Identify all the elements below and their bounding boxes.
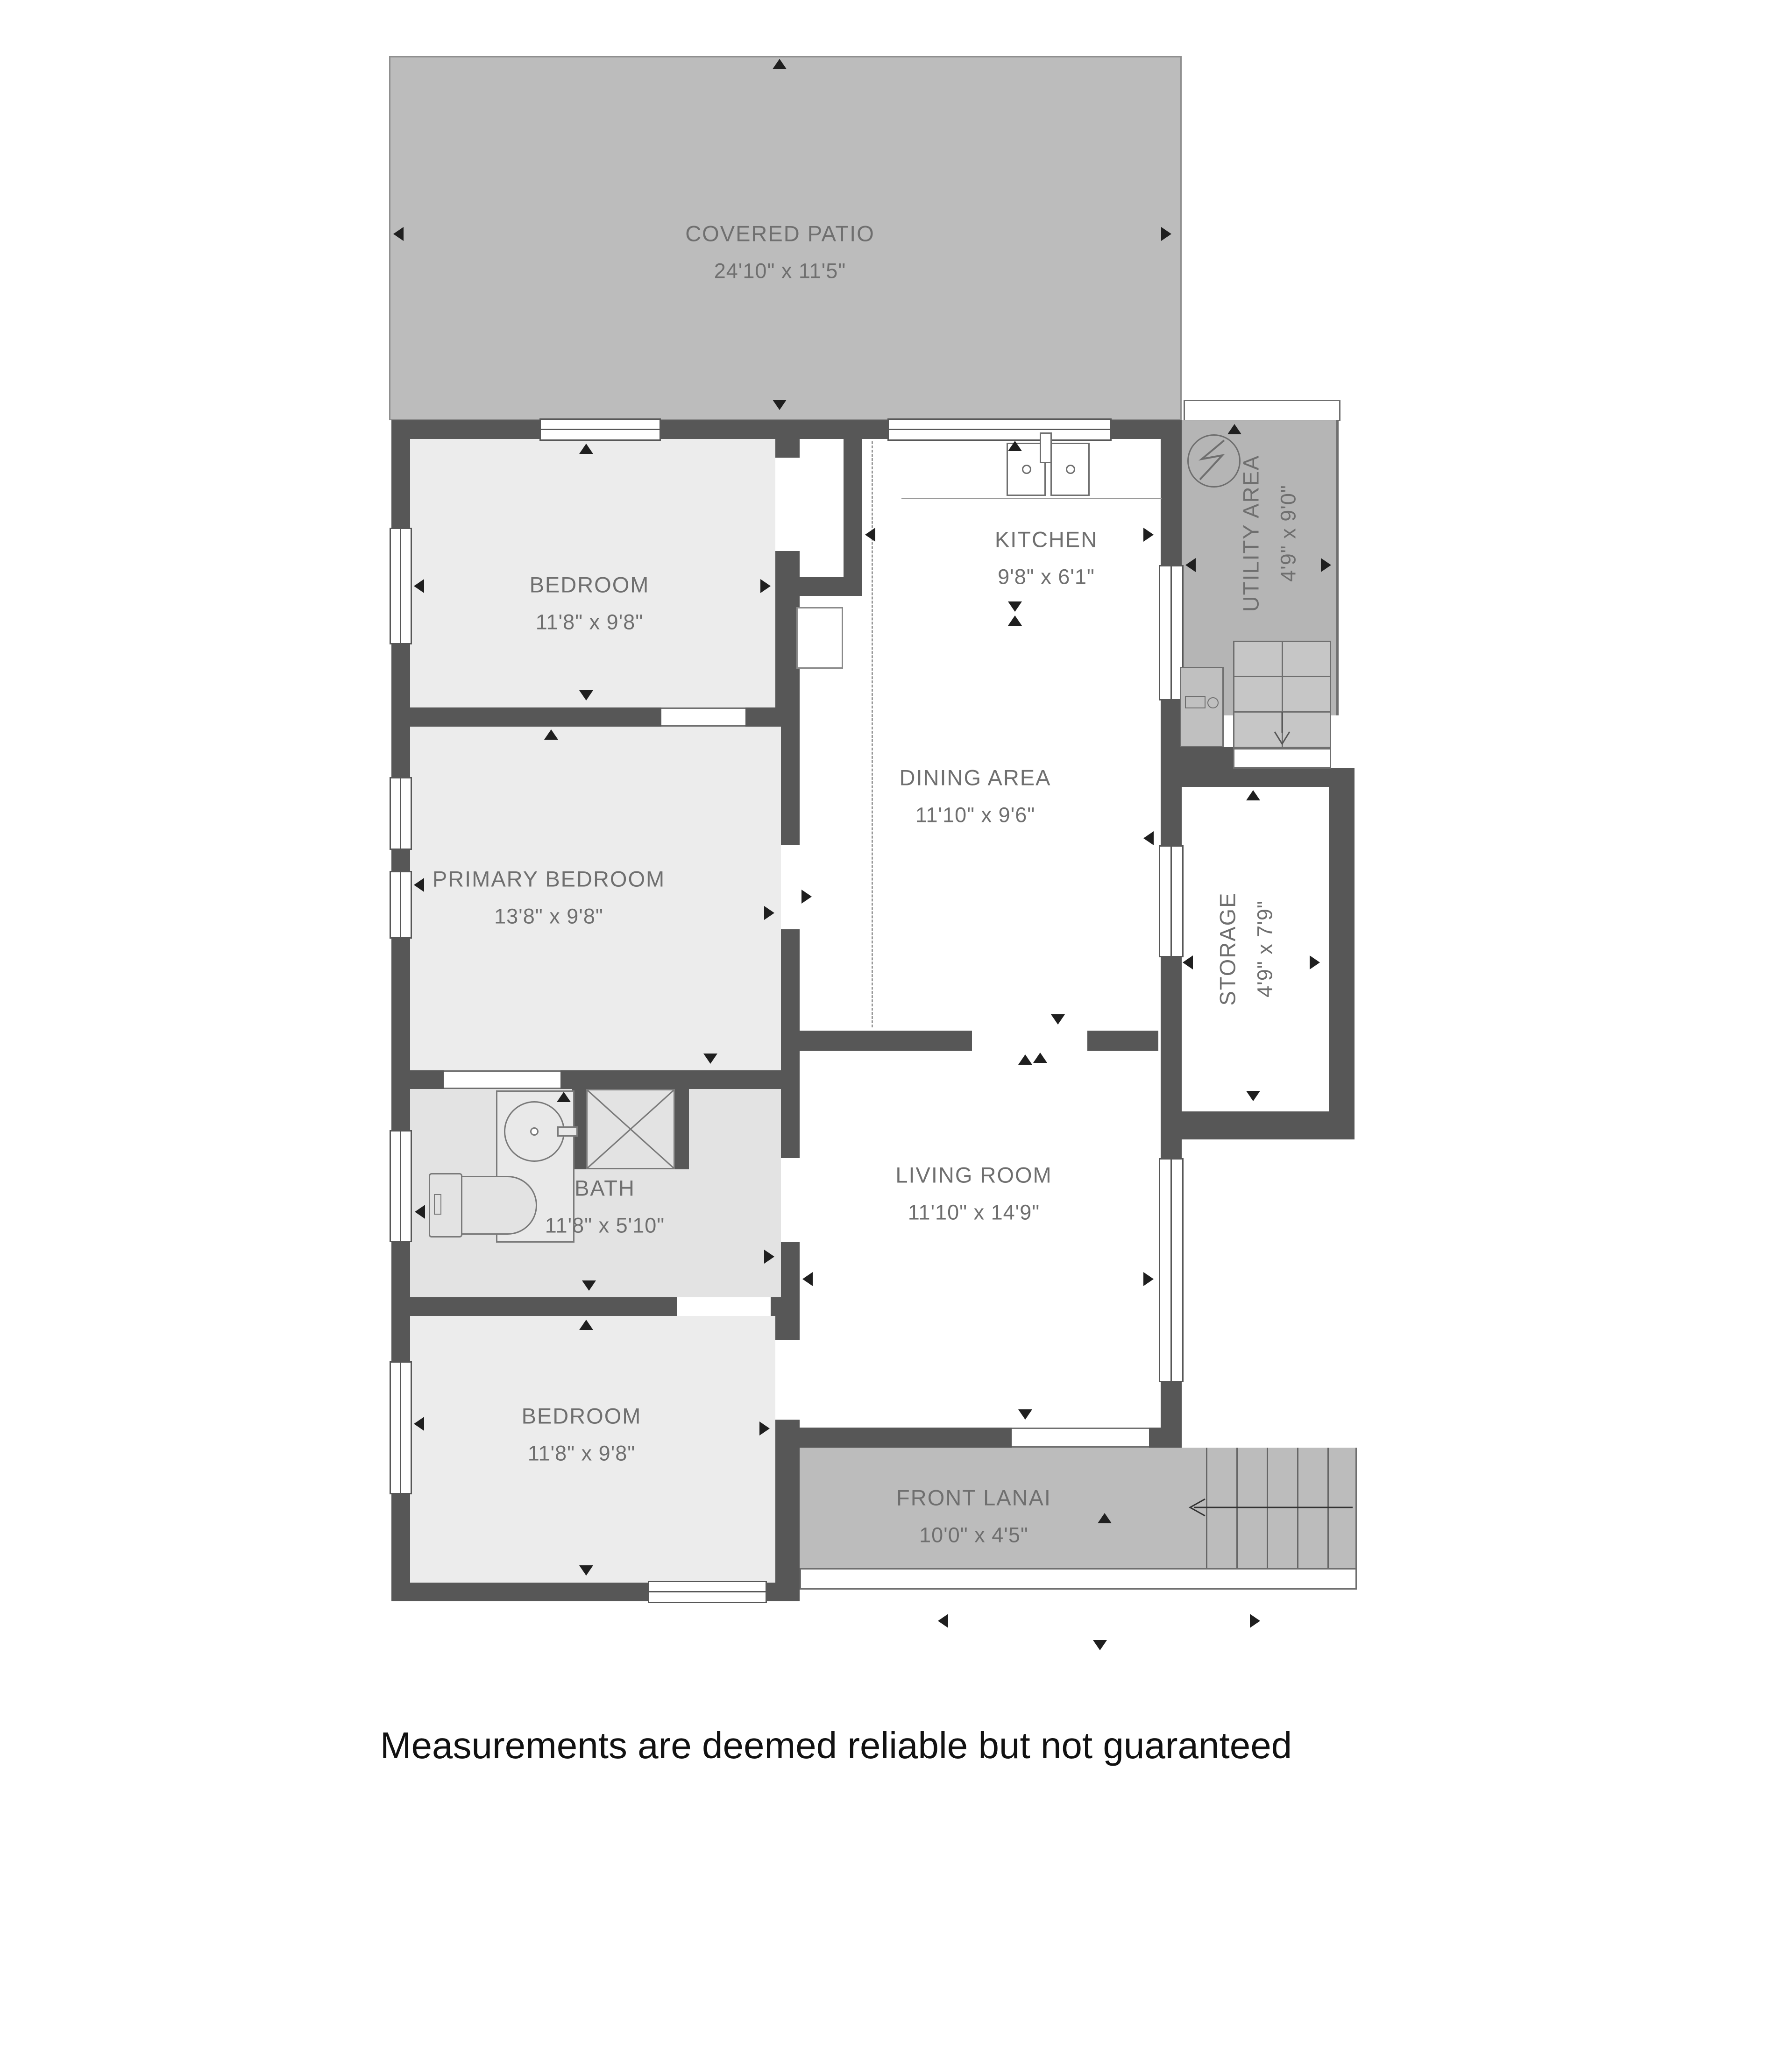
room-name: COVERED PATIO xyxy=(685,215,875,253)
dimension-tick-icon xyxy=(759,1421,770,1436)
wall-storage-bottom xyxy=(1179,1111,1355,1139)
disclaimer-text: Measurements are deemed reliable but not… xyxy=(380,1724,1292,1767)
room-label-bedroom-top: BEDROOM 11'8" x 9'8" xyxy=(530,566,650,641)
room-dims: 11'10" x 14'9" xyxy=(895,1195,1052,1231)
room-label-living: LIVING ROOM 11'10" x 14'9" xyxy=(895,1156,1052,1231)
dimension-tick-icon xyxy=(764,906,774,920)
room-label-bath: BATH 11'8" x 5'10" xyxy=(545,1169,665,1245)
dimension-tick-icon xyxy=(1227,424,1241,434)
wall-bedroom-top-right-stub xyxy=(775,439,800,458)
dimension-tick-icon xyxy=(415,1205,425,1219)
cased-opening-living-lanai xyxy=(1012,1428,1149,1448)
wall-shower-stub-right xyxy=(675,1089,689,1169)
dimension-tick-icon xyxy=(1018,1409,1032,1420)
dimension-tick-icon xyxy=(1008,601,1022,612)
window-storage-left xyxy=(1159,845,1184,957)
dimension-tick-icon xyxy=(579,1565,593,1576)
room-dims: 24'10" x 11'5" xyxy=(685,253,875,290)
window-kitchen-top xyxy=(887,418,1112,441)
room-label-covered-patio: COVERED PATIO 24'10" x 11'5" xyxy=(685,215,875,290)
door-opening-bath xyxy=(781,1158,800,1242)
dimension-tick-icon xyxy=(773,400,787,410)
room-dims: 11'8" x 9'8" xyxy=(522,1436,642,1472)
window-living-right xyxy=(1159,1158,1184,1382)
room-label-kitchen: KITCHEN 9'8" x 6'1" xyxy=(995,521,1098,596)
room-name: FRONT LANAI xyxy=(896,1479,1051,1517)
room-label-dining: DINING AREA 11'10" x 9'6" xyxy=(900,759,1051,834)
dimension-tick-icon xyxy=(773,59,787,69)
room-dims: 4'9" x 9'0" xyxy=(1270,455,1307,612)
dimension-tick-icon xyxy=(557,1092,571,1102)
wall-closet-bottom xyxy=(775,577,862,596)
closet-shelf xyxy=(796,607,843,669)
dimension-tick-icon xyxy=(1018,1054,1032,1065)
kitchen-faucet-icon xyxy=(1040,432,1052,463)
window-primary-left-1 xyxy=(390,777,412,850)
dimension-tick-icon xyxy=(1098,1513,1112,1523)
room-name: BEDROOM xyxy=(522,1397,642,1436)
room-dims: 10'0" x 4'5" xyxy=(896,1517,1051,1554)
shower-icon xyxy=(586,1089,675,1169)
wall-utility-bottom xyxy=(1163,747,1233,768)
dimension-tick-icon xyxy=(801,890,812,904)
dimension-tick-icon xyxy=(1310,955,1320,969)
stairs-landing xyxy=(1233,748,1331,769)
dimension-tick-icon xyxy=(414,1417,424,1431)
dimension-tick-icon xyxy=(1183,955,1193,969)
lanai-edge-band xyxy=(800,1568,1357,1590)
room-dims: 13'8" x 9'8" xyxy=(433,898,665,935)
dimension-tick-icon xyxy=(1185,558,1196,572)
window-bedroom-bottom xyxy=(648,1581,767,1603)
dimension-tick-icon xyxy=(1246,1091,1260,1101)
room-dims: 9'8" x 6'1" xyxy=(995,559,1098,596)
room-name: BATH xyxy=(545,1169,665,1208)
room-label-front-lanai: FRONT LANAI 10'0" x 4'5" xyxy=(896,1479,1051,1554)
dimension-tick-icon xyxy=(865,528,875,542)
window-bath-left xyxy=(390,1130,412,1242)
room-name: DINING AREA xyxy=(900,759,1051,797)
window-bedroom-bottom-left xyxy=(390,1361,412,1494)
room-label-storage: STORAGE 4'9" x 7'9" xyxy=(1209,892,1284,1006)
dimension-tick-icon xyxy=(1093,1640,1107,1650)
washing-machine-icon xyxy=(1180,667,1224,747)
door-opening-bath-hall xyxy=(677,1297,771,1316)
dimension-tick-icon xyxy=(1008,441,1022,451)
room-dims: 11'10" x 9'6" xyxy=(900,797,1051,834)
floor-plan: COVERED PATIO 24'10" x 11'5" BEDROOM 11'… xyxy=(0,0,1773,2072)
stairs-entry-icon xyxy=(1186,1497,1355,1518)
dimension-tick-icon xyxy=(1246,790,1260,800)
dimension-tick-icon xyxy=(1008,615,1022,626)
dimension-tick-icon xyxy=(1033,1053,1047,1063)
dimension-tick-icon xyxy=(1143,528,1154,542)
window-bedroom-top-left xyxy=(390,528,412,644)
wall-storage-top xyxy=(1179,768,1355,787)
dimension-tick-icon xyxy=(760,579,771,593)
kitchen-counter-edge xyxy=(901,498,1162,499)
room-label-utility: UTILITY AREA 4'9" x 9'0" xyxy=(1232,455,1307,612)
dimension-tick-icon xyxy=(1143,831,1154,845)
room-dims: 11'8" x 5'10" xyxy=(545,1208,665,1245)
dimension-tick-icon xyxy=(579,1320,593,1330)
utility-open-band xyxy=(1184,400,1340,421)
room-dims: 11'8" x 9'8" xyxy=(530,604,650,641)
dimension-tick-icon xyxy=(802,1272,813,1286)
dimension-tick-icon xyxy=(1161,227,1171,241)
dimension-tick-icon xyxy=(703,1054,717,1064)
window-primary-left-2 xyxy=(390,871,412,939)
wall-storage-right xyxy=(1329,768,1355,1139)
toilet-icon xyxy=(429,1173,462,1238)
wall-closet-right xyxy=(844,439,862,596)
dimension-tick-icon xyxy=(393,227,404,241)
dimension-tick-icon xyxy=(544,729,558,740)
dimension-tick-icon xyxy=(582,1280,596,1291)
room-name: BEDROOM xyxy=(530,566,650,604)
room-name: PRIMARY BEDROOM xyxy=(433,860,665,898)
dimension-tick-icon xyxy=(1143,1272,1154,1286)
dimension-tick-icon xyxy=(938,1614,948,1628)
dimension-tick-icon xyxy=(1250,1614,1260,1628)
toilet-bowl xyxy=(462,1176,537,1235)
dimension-tick-icon xyxy=(414,579,424,593)
door-opening-primary xyxy=(781,845,800,929)
dimension-tick-icon xyxy=(579,690,593,700)
kitchen-sink-icon xyxy=(1050,443,1090,496)
opening-dining-living xyxy=(972,1031,1087,1051)
room-name: KITCHEN xyxy=(995,521,1098,559)
door-opening-bedroom-bottom xyxy=(775,1340,800,1420)
window-bedroom-top xyxy=(539,418,661,441)
dimension-tick-icon xyxy=(764,1250,774,1264)
room-label-primary: PRIMARY BEDROOM 13'8" x 9'8" xyxy=(433,860,665,935)
room-name: UTILITY AREA xyxy=(1232,455,1270,612)
dimension-tick-icon xyxy=(1051,1014,1065,1025)
room-label-bedroom-bottom: BEDROOM 11'8" x 9'8" xyxy=(522,1397,642,1472)
room-name: LIVING ROOM xyxy=(895,1156,1052,1195)
cased-opening-primary-bath xyxy=(444,1070,560,1089)
cased-opening-bedrooms xyxy=(661,707,745,727)
room-name: STORAGE xyxy=(1209,892,1247,1006)
dimension-tick-icon xyxy=(1321,558,1331,572)
stairs-down-icon xyxy=(1233,641,1331,748)
dimension-tick-icon xyxy=(414,878,424,892)
dimension-tick-icon xyxy=(579,444,593,454)
room-dims: 4'9" x 7'9" xyxy=(1247,892,1284,1006)
